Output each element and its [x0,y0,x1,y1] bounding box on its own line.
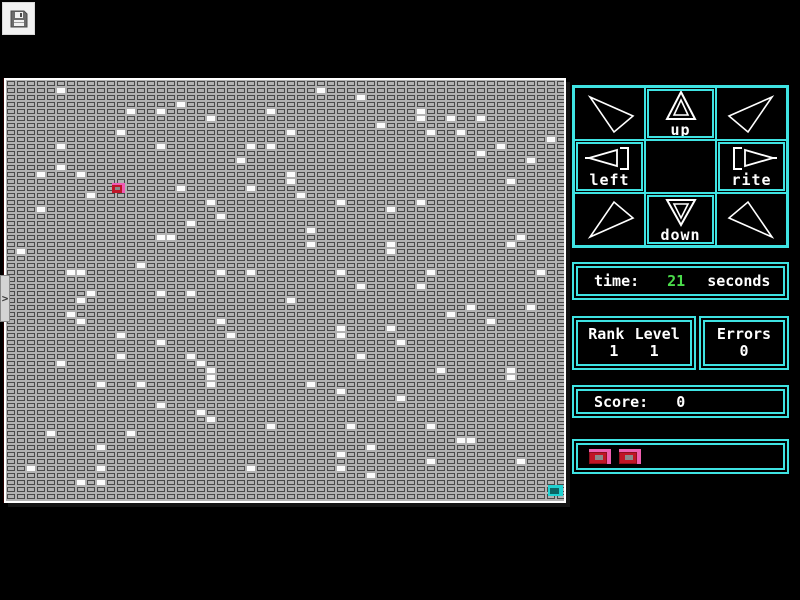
white-tile [337,389,345,394]
white-tile [447,312,455,317]
white-tile [457,130,465,135]
dpad-down-button[interactable]: down [645,193,716,246]
white-tile [127,431,135,436]
white-tile [387,249,395,254]
white-tile [57,144,65,149]
white-tile [477,116,485,121]
player-tile [112,183,125,193]
white-tile [427,424,435,429]
dpad-up-label: up [670,123,690,138]
white-tile [337,326,345,331]
white-tile [37,172,45,177]
white-tile [487,319,495,324]
white-tile [547,137,555,142]
score-box: Score: 0 [572,385,789,418]
white-tile [357,354,365,359]
white-tile [227,333,235,338]
white-tile [207,417,215,422]
white-tile [337,466,345,471]
white-tile [207,382,215,387]
white-tile [527,158,535,163]
white-tile [377,123,385,128]
white-tile [507,368,515,373]
arrow-sw-icon [578,196,642,244]
white-tile [117,354,125,359]
white-tile [287,172,295,177]
white-tile [307,242,315,247]
errors-label: Errors [717,326,771,343]
white-tile [247,186,255,191]
level-value: 1 [650,343,659,360]
white-tile [157,340,165,345]
white-tile [207,200,215,205]
white-tile [77,298,85,303]
dpad-left-label: left [589,173,629,188]
dpad-down-left-button[interactable] [574,193,645,246]
white-tile [347,424,355,429]
white-tile [417,284,425,289]
arrow-down-icon [660,197,702,227]
arrow-right-icon [725,146,779,172]
white-tile [67,270,75,275]
white-tile [387,207,395,212]
arrow-ne-icon [720,90,784,138]
playfield[interactable] [4,78,566,503]
time-unit: seconds [707,272,770,290]
time-box: time: 21 seconds [572,262,789,300]
white-tiles-layer [6,80,564,501]
white-tile [167,235,175,240]
dpad: up left rite [572,85,789,248]
white-tile [507,242,515,247]
white-tile [197,410,205,415]
dpad-down-right-button[interactable] [716,193,787,246]
white-tile [117,333,125,338]
white-tile [157,109,165,114]
dpad-left-button[interactable]: left [574,140,645,193]
white-tile [197,361,205,366]
white-tile [57,88,65,93]
white-tile [417,200,425,205]
white-tile [297,193,305,198]
score-value: 0 [676,393,685,411]
white-tile [337,452,345,457]
white-tile [77,172,85,177]
white-tile [437,368,445,373]
white-tile [267,424,275,429]
white-tile [427,270,435,275]
white-tile [367,473,375,478]
white-tile [187,354,195,359]
rank-label: Rank [588,326,624,343]
white-tile [337,200,345,205]
white-tile [207,375,215,380]
white-tile [137,263,145,268]
dpad-up-left-button[interactable] [574,87,645,140]
white-tile [357,95,365,100]
rank-level-box: Rank Level 1 1 [572,316,696,370]
errors-box: Errors 0 [699,316,789,370]
time-value: 21 [667,272,685,290]
white-tile [387,242,395,247]
white-tile [357,284,365,289]
white-tile [457,438,465,443]
arrow-up-icon [660,90,702,122]
white-tile [157,235,165,240]
life-cube [619,449,641,464]
white-tile [87,291,95,296]
white-tile [507,179,515,184]
white-tile [397,340,405,345]
white-tile [117,130,125,135]
white-tile [127,109,135,114]
white-tile [27,466,35,471]
arrow-nw-icon [578,90,642,138]
lives-box [572,439,789,474]
white-tile [97,445,105,450]
white-tile [187,221,195,226]
white-tile [247,466,255,471]
save-button[interactable] [2,2,35,35]
white-tile [517,235,525,240]
dpad-rite-button[interactable]: rite [716,140,787,193]
white-tile [427,459,435,464]
rank-value: 1 [609,343,618,360]
white-tile [287,298,295,303]
time-label: time: [594,272,639,290]
white-tile [417,109,425,114]
white-tile [97,480,105,485]
score-label: Score: [594,393,648,411]
white-tile [157,403,165,408]
white-tile [237,158,245,163]
dpad-rite-label: rite [731,173,771,188]
white-tile [267,144,275,149]
white-tile [217,214,225,219]
white-tile [417,116,425,121]
dpad-up-right-button[interactable] [716,87,787,140]
tile-layer [6,80,564,501]
errors-value: 0 [739,343,748,360]
white-tile [317,88,325,93]
white-tile [247,144,255,149]
white-tile [387,326,395,331]
white-tile [337,270,345,275]
arrow-left-icon [583,146,637,172]
chevron-right-icon: > [2,292,9,305]
white-tile [307,382,315,387]
dpad-center-cell [645,140,716,193]
white-tile [427,130,435,135]
floppy-disk-icon [8,8,30,30]
white-tile [157,144,165,149]
arrow-se-icon [720,196,784,244]
white-tile [527,305,535,310]
white-tile [397,396,405,401]
white-tile [47,431,55,436]
white-tile [207,116,215,121]
white-tile [267,109,275,114]
white-tile [57,361,65,366]
dpad-down-label: down [660,228,700,243]
goal-tile [548,485,563,496]
white-tile [467,438,475,443]
white-tile [287,130,295,135]
white-tile [467,305,475,310]
white-tile [97,382,105,387]
white-tile [497,144,505,149]
white-tile [177,102,185,107]
white-tile [477,151,485,156]
white-tile [207,368,215,373]
white-tile [187,291,195,296]
dpad-up-button[interactable]: up [645,87,716,140]
white-tile [247,270,255,275]
white-tile [37,207,45,212]
white-tile [447,116,455,121]
white-tile [57,165,65,170]
white-tile [17,249,25,254]
white-tile [217,319,225,324]
white-tile [77,480,85,485]
white-tile [217,270,225,275]
white-tile [517,459,525,464]
white-tile [337,333,345,338]
white-tile [177,186,185,191]
lives-row [576,443,785,470]
white-tile [137,382,145,387]
white-tile [367,445,375,450]
white-tile [537,270,545,275]
white-tile [67,312,75,317]
white-tile [157,291,165,296]
white-tile [97,466,105,471]
life-cube [589,449,611,464]
white-tile [77,270,85,275]
white-tile [287,179,295,184]
white-tile [87,193,95,198]
white-tile [307,228,315,233]
level-label: Level [635,326,680,343]
side-panel-tab[interactable]: > [0,275,10,322]
white-tile [77,319,85,324]
white-tile [507,375,515,380]
